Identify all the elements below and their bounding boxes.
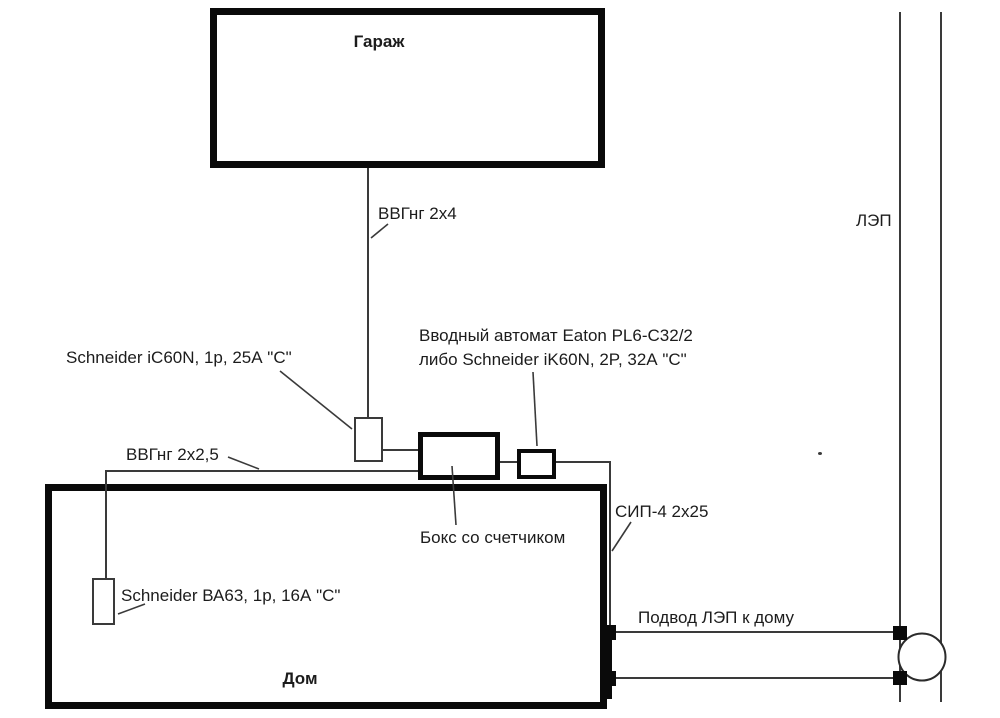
service-drop-bottom-wire <box>616 677 897 679</box>
house-top-terminal <box>602 625 616 640</box>
meter-to-main-breaker-wire <box>500 461 517 463</box>
sip-cable-label: СИП-4 2х25 <box>615 501 708 523</box>
service-drop-label: Подвод ЛЭП к дому <box>638 607 794 629</box>
main-breaker-box <box>517 449 556 479</box>
power-line-right-wire <box>940 12 942 702</box>
garage-breaker-to-meter-wire <box>382 449 418 451</box>
sip-drop-wire <box>609 461 611 628</box>
garage-cable-leader-line <box>371 224 388 238</box>
house-breaker-label: Schneider ВА63, 1p, 16А "С" <box>121 585 340 607</box>
main-breaker-label-line1: Вводный автомат Eaton PL6-C32/2 <box>419 325 693 347</box>
house-label: Дом <box>260 668 340 690</box>
garage-cable-wire <box>367 168 369 418</box>
meter-box <box>418 432 500 480</box>
main-breaker-leader-line <box>533 372 537 446</box>
house-cable-leader-line <box>228 457 259 469</box>
garage-breaker-box <box>354 417 383 462</box>
garage-breaker-leader-line <box>280 371 352 429</box>
pole-bottom-terminal <box>893 671 907 685</box>
house-cable-horizontal-wire <box>105 470 418 472</box>
main-breaker-output-wire <box>556 461 611 463</box>
garage-cable-label: ВВГнг 2х4 <box>378 203 457 225</box>
meter-box-label: Бокс со счетчиком <box>420 527 565 549</box>
power-line-label: ЛЭП <box>856 210 892 232</box>
power-line-left-wire <box>899 12 901 702</box>
garage-label: Гараж <box>339 31 419 53</box>
sip-cable-leader-line <box>612 522 631 551</box>
pole-top-terminal <box>893 626 907 640</box>
garage-breaker-label: Schneider iC60N, 1p, 25А "С" <box>66 347 292 369</box>
house-cable-label: ВВГнг 2х2,5 <box>126 444 219 466</box>
ink-dot <box>818 452 822 455</box>
main-breaker-label-line2: либо Schneider iK60N, 2P, 32А "С" <box>419 349 687 371</box>
house-cable-vertical-wire <box>105 470 107 578</box>
house-bottom-terminal <box>602 671 616 686</box>
wiring-diagram: Гараж Дом ЛЭП ВВГнг 2х4 Schneider iC60N,… <box>0 0 1000 718</box>
service-drop-top-wire <box>616 631 897 633</box>
house-breaker-box <box>92 578 115 625</box>
